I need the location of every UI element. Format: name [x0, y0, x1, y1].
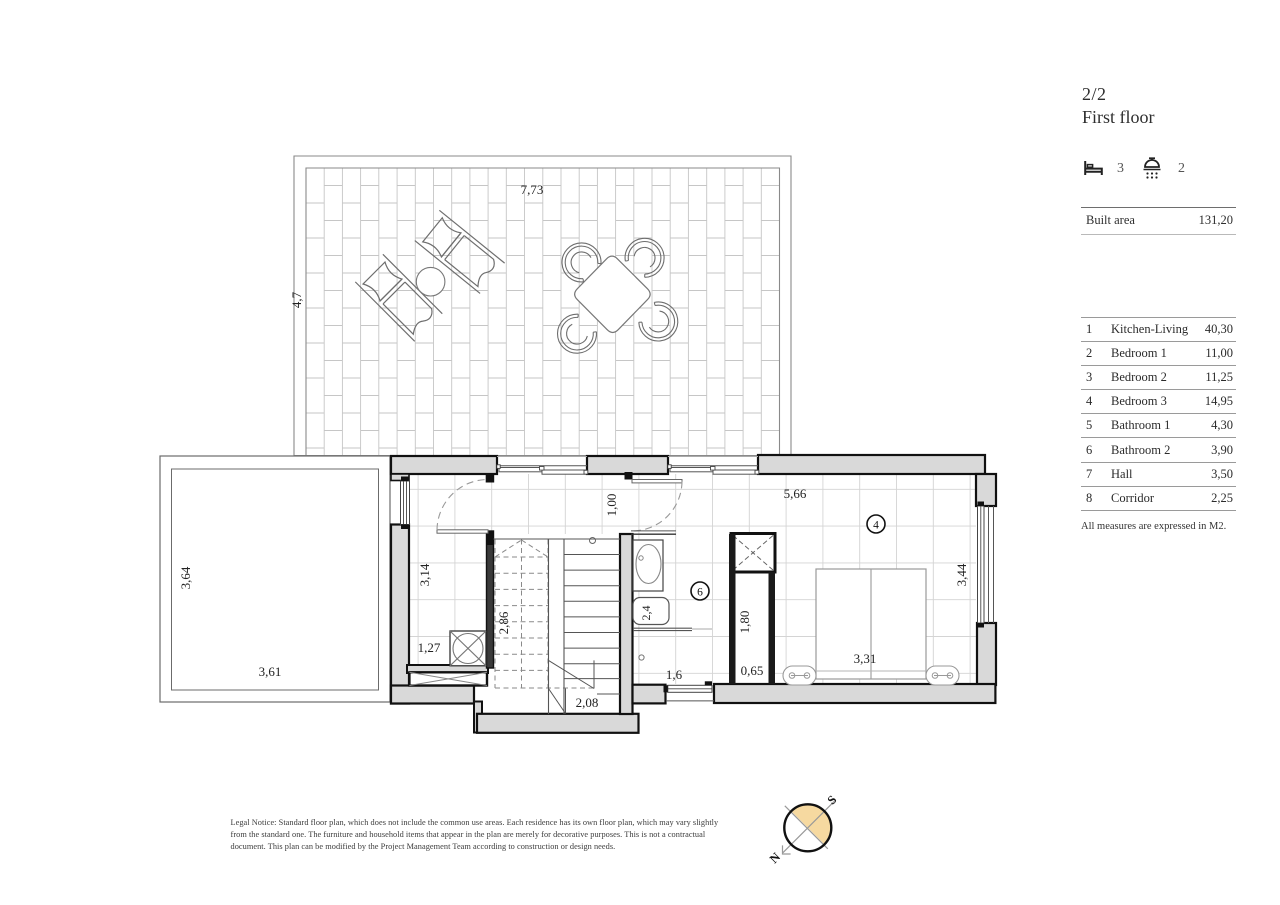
- svg-text:0,65: 0,65: [741, 663, 764, 678]
- svg-text:1,6: 1,6: [666, 667, 683, 682]
- svg-text:7,73: 7,73: [521, 182, 544, 197]
- svg-text:3,64: 3,64: [178, 566, 193, 589]
- svg-text:5,66: 5,66: [784, 486, 807, 501]
- svg-text:4,7: 4,7: [289, 291, 304, 308]
- svg-text:3,14: 3,14: [417, 563, 432, 586]
- svg-text:1,00: 1,00: [604, 494, 619, 517]
- svg-text:3,44: 3,44: [954, 563, 969, 586]
- svg-text:6: 6: [697, 587, 703, 599]
- svg-text:3,31: 3,31: [854, 651, 877, 666]
- svg-text:1,80: 1,80: [737, 611, 752, 634]
- svg-text:S: S: [825, 793, 840, 808]
- svg-text:3,61: 3,61: [259, 664, 282, 679]
- svg-text:1,27: 1,27: [418, 640, 441, 655]
- svg-text:2,4: 2,4: [639, 606, 653, 621]
- svg-text:N: N: [767, 850, 783, 866]
- svg-text:2,86: 2,86: [496, 611, 511, 634]
- svg-text:4: 4: [873, 520, 879, 532]
- svg-text:2,08: 2,08: [576, 695, 599, 710]
